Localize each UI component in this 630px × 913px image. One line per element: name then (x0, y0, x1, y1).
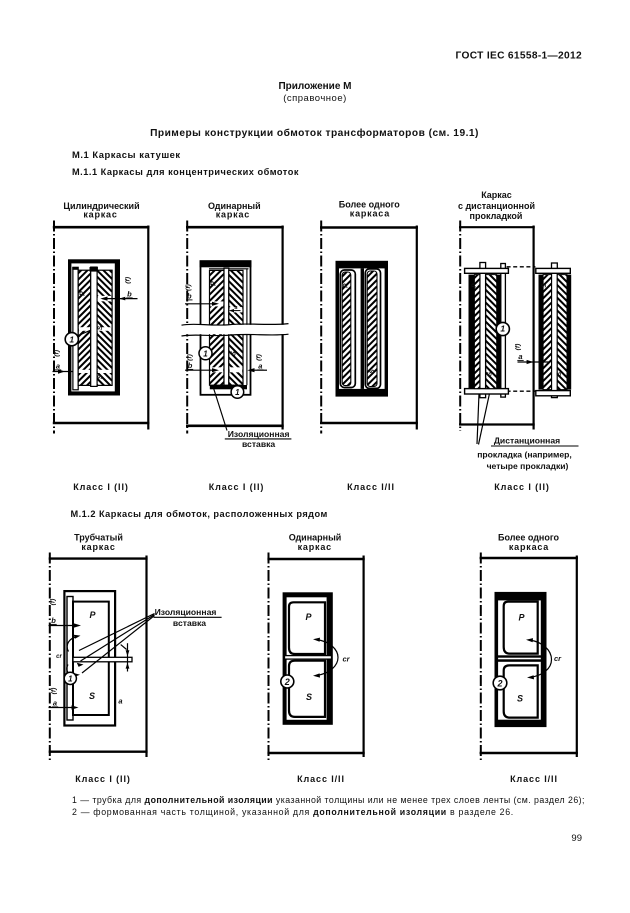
svg-text:Одинарный: Одинарный (289, 533, 342, 543)
svg-text:с дистанционной: с дистанционной (458, 201, 535, 211)
svg-text:cr: cr (342, 655, 350, 664)
svg-text:М.1.1 Каркасы для концентричес: М.1.1 Каркасы для концентрических обмото… (72, 167, 299, 177)
svg-text:b: b (187, 292, 192, 301)
svg-text:S: S (517, 694, 523, 704)
svg-text:каркас: каркас (83, 210, 117, 220)
svg-text:Класс I/II: Класс I/II (297, 774, 345, 784)
svg-text:P: P (89, 610, 96, 620)
svg-text:прокладка (например,: прокладка (например, (477, 450, 572, 460)
svg-text:Класс I (II): Класс I (II) (75, 774, 131, 784)
svg-text:Каркас: Каркас (481, 190, 512, 200)
svg-text:(f): (f) (185, 283, 192, 291)
svg-text:a: a (518, 352, 522, 361)
svg-text:a: a (258, 362, 262, 371)
svg-text:каркас: каркас (216, 210, 250, 220)
svg-text:a: a (234, 305, 237, 311)
svg-text:четыре прокладки): четыре прокладки) (487, 461, 569, 471)
svg-text:(f): (f) (54, 349, 61, 357)
svg-text:P: P (211, 281, 218, 286)
svg-text:S: S (306, 692, 312, 702)
svg-text:(f): (f) (51, 687, 58, 695)
svg-text:Приложение М: Приложение М (278, 81, 351, 92)
svg-text:Класс I/II: Класс I/II (510, 774, 558, 784)
svg-text:1 — трубка для дополнительной: 1 — трубка для дополнительной изоляции у… (72, 795, 585, 805)
svg-text:cr: cr (56, 654, 62, 660)
svg-text:прокладкой: прокладкой (470, 211, 523, 221)
svg-text:P: P (80, 291, 87, 296)
svg-text:b: b (127, 290, 132, 299)
svg-text:каркас: каркас (298, 542, 332, 552)
svg-text:Изоляционная: Изоляционная (155, 607, 217, 617)
svg-text:Примеры конструкции обмоток тр: Примеры конструкции обмоток трансформато… (150, 127, 479, 139)
svg-text:b: b (188, 361, 193, 370)
svg-text:99: 99 (571, 833, 582, 844)
svg-text:каркаса: каркаса (350, 209, 390, 219)
svg-text:2 — формованная часть толщиной: 2 — формованная часть толщиной, указанно… (72, 807, 514, 817)
svg-text:P: P (518, 613, 525, 623)
svg-text:Изоляционная: Изоляционная (228, 429, 290, 439)
svg-text:S: S (231, 351, 238, 356)
svg-text:(справочное): (справочное) (283, 93, 347, 104)
svg-text:1: 1 (203, 350, 208, 359)
svg-text:(f): (f) (256, 353, 263, 361)
svg-text:1: 1 (500, 324, 505, 334)
svg-text:Класс I (II): Класс I (II) (494, 482, 550, 492)
svg-text:Класс I (II): Класс I (II) (73, 482, 129, 492)
svg-text:S: S (369, 369, 376, 374)
svg-text:(f): (f) (125, 276, 132, 284)
svg-text:2: 2 (496, 678, 502, 688)
svg-text:a: a (118, 697, 122, 706)
svg-text:вставка: вставка (173, 618, 206, 628)
svg-text:P: P (343, 283, 350, 288)
svg-text:каркас: каркас (81, 542, 115, 552)
svg-text:Более одного: Более одного (498, 533, 560, 543)
svg-text:S: S (97, 374, 104, 379)
svg-text:Класс I (II): Класс I (II) (209, 482, 265, 492)
svg-text:1: 1 (68, 675, 73, 684)
svg-text:ГОСТ IEC 61558-1—2012: ГОСТ IEC 61558-1—2012 (456, 51, 583, 62)
svg-text:a: a (53, 699, 57, 708)
svg-text:cr: cr (554, 654, 562, 663)
svg-text:каркаса: каркаса (509, 542, 549, 552)
svg-text:(f): (f) (187, 353, 194, 361)
svg-text:1: 1 (69, 335, 74, 345)
svg-text:вставка: вставка (242, 439, 275, 449)
svg-text:Дистанционная: Дистанционная (494, 436, 560, 446)
svg-text:Класс I/II: Класс I/II (347, 482, 395, 492)
svg-text:S: S (89, 691, 95, 701)
svg-text:2: 2 (284, 677, 290, 687)
svg-text:М.1 Каркасы катушек: М.1 Каркасы катушек (72, 149, 181, 160)
svg-text:a: a (56, 362, 60, 371)
svg-text:(f): (f) (515, 343, 522, 351)
svg-text:(f): (f) (50, 598, 57, 606)
svg-text:S: S (97, 325, 104, 330)
svg-text:М.1.2 Каркасы для обмоток, рас: М.1.2 Каркасы для обмоток, расположенных… (71, 509, 328, 519)
svg-text:Трубчатый: Трубчатый (74, 533, 123, 543)
svg-text:P: P (305, 612, 312, 622)
svg-text:b: b (51, 616, 56, 625)
svg-text:1: 1 (235, 388, 240, 397)
